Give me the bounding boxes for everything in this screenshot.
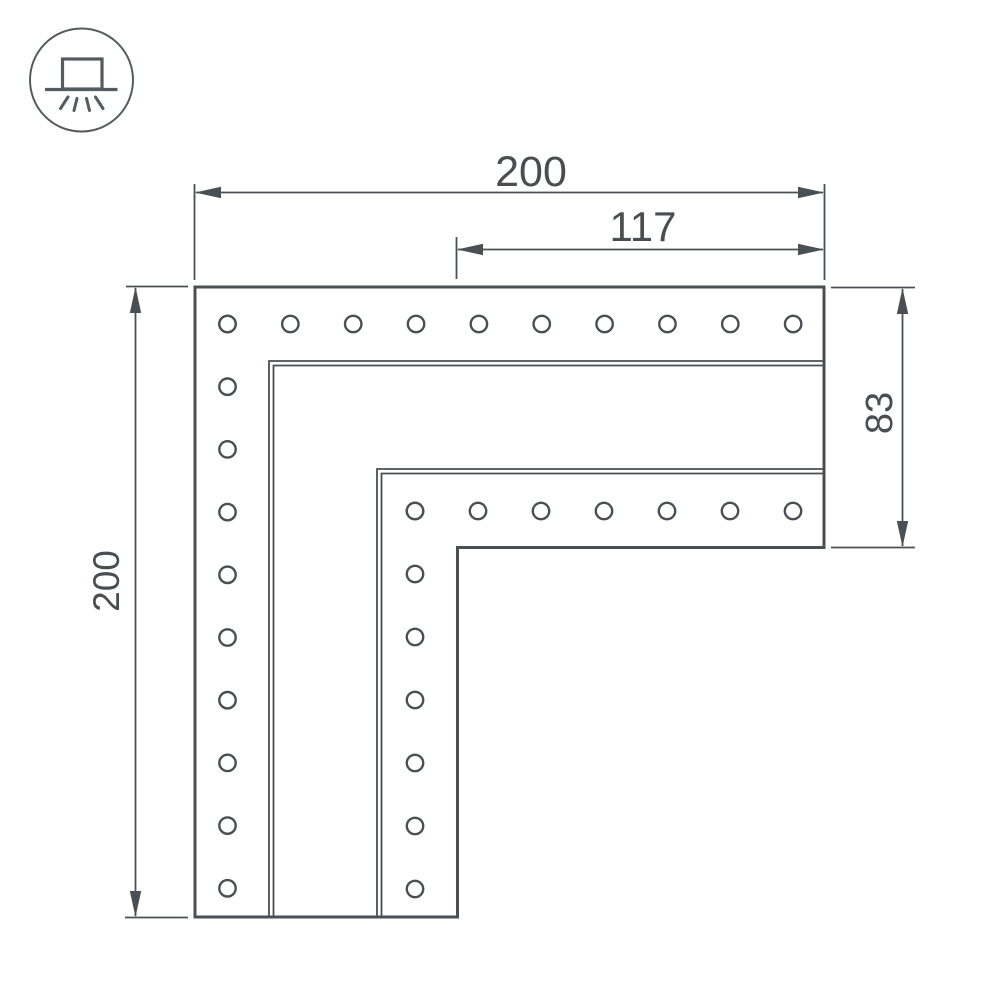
mounting-hole: [219, 692, 235, 708]
dimension-width-inner: 117: [457, 203, 825, 279]
mounting-hole: [219, 629, 235, 645]
arrow-up-icon: [130, 287, 141, 313]
mounting-hole: [219, 316, 235, 332]
dimension-width-total: 200: [195, 148, 825, 280]
mounting-hole: [785, 316, 801, 332]
arrow-down-icon: [130, 891, 141, 917]
mounting-hole: [219, 379, 235, 395]
arrow-left-icon: [457, 244, 483, 255]
mounting-hole: [407, 566, 423, 582]
mounting-hole: [534, 316, 550, 332]
mounting-hole: [219, 817, 235, 833]
mounting-hole: [533, 503, 549, 519]
mounting-hole: [407, 692, 423, 708]
arrow-up-icon: [897, 288, 908, 314]
icon-light-rays: [61, 97, 104, 111]
icon-circle: [30, 29, 133, 132]
mounting-hole: [282, 316, 298, 332]
connector-part: [195, 287, 824, 917]
icon-lamp-box: [63, 59, 103, 89]
mounting-hole: [722, 316, 738, 332]
mounting-hole: [407, 818, 423, 834]
mounting-hole: [219, 504, 235, 520]
arrow-right-icon: [798, 187, 824, 198]
dimension-label-height-total: 200: [86, 550, 127, 612]
dimension-height-right: 83: [831, 288, 915, 548]
mounting-hole: [407, 503, 423, 519]
dimension-label-width-total: 200: [495, 148, 567, 196]
mounting-hole: [470, 503, 486, 519]
mounting-hole: [407, 755, 423, 771]
mounting-hole: [722, 503, 738, 519]
mounting-hole: [407, 881, 423, 897]
technical-drawing: 200 117 200 83: [0, 0, 1000, 999]
surface-mount-light-icon: [30, 29, 133, 132]
mounting-hole: [408, 316, 424, 332]
arrow-down-icon: [897, 521, 908, 547]
mounting-hole: [219, 567, 235, 583]
connector-outline: [195, 287, 824, 917]
mounting-hole: [345, 316, 361, 332]
arrow-left-icon: [195, 187, 221, 198]
dimension-label-width-inner: 117: [610, 203, 677, 250]
mounting-hole: [219, 880, 235, 896]
mounting-hole: [596, 503, 612, 519]
mounting-hole: [785, 503, 801, 519]
mounting-hole: [659, 503, 675, 519]
mounting-hole: [659, 316, 675, 332]
mounting-hole: [219, 441, 235, 457]
arrow-right-icon: [798, 244, 824, 255]
mounting-hole: [596, 316, 612, 332]
mounting-hole: [407, 629, 423, 645]
mounting-hole: [219, 755, 235, 771]
dimension-label-height-right: 83: [859, 392, 901, 434]
dimension-height-total: 200: [86, 287, 188, 918]
mounting-hole: [471, 316, 487, 332]
